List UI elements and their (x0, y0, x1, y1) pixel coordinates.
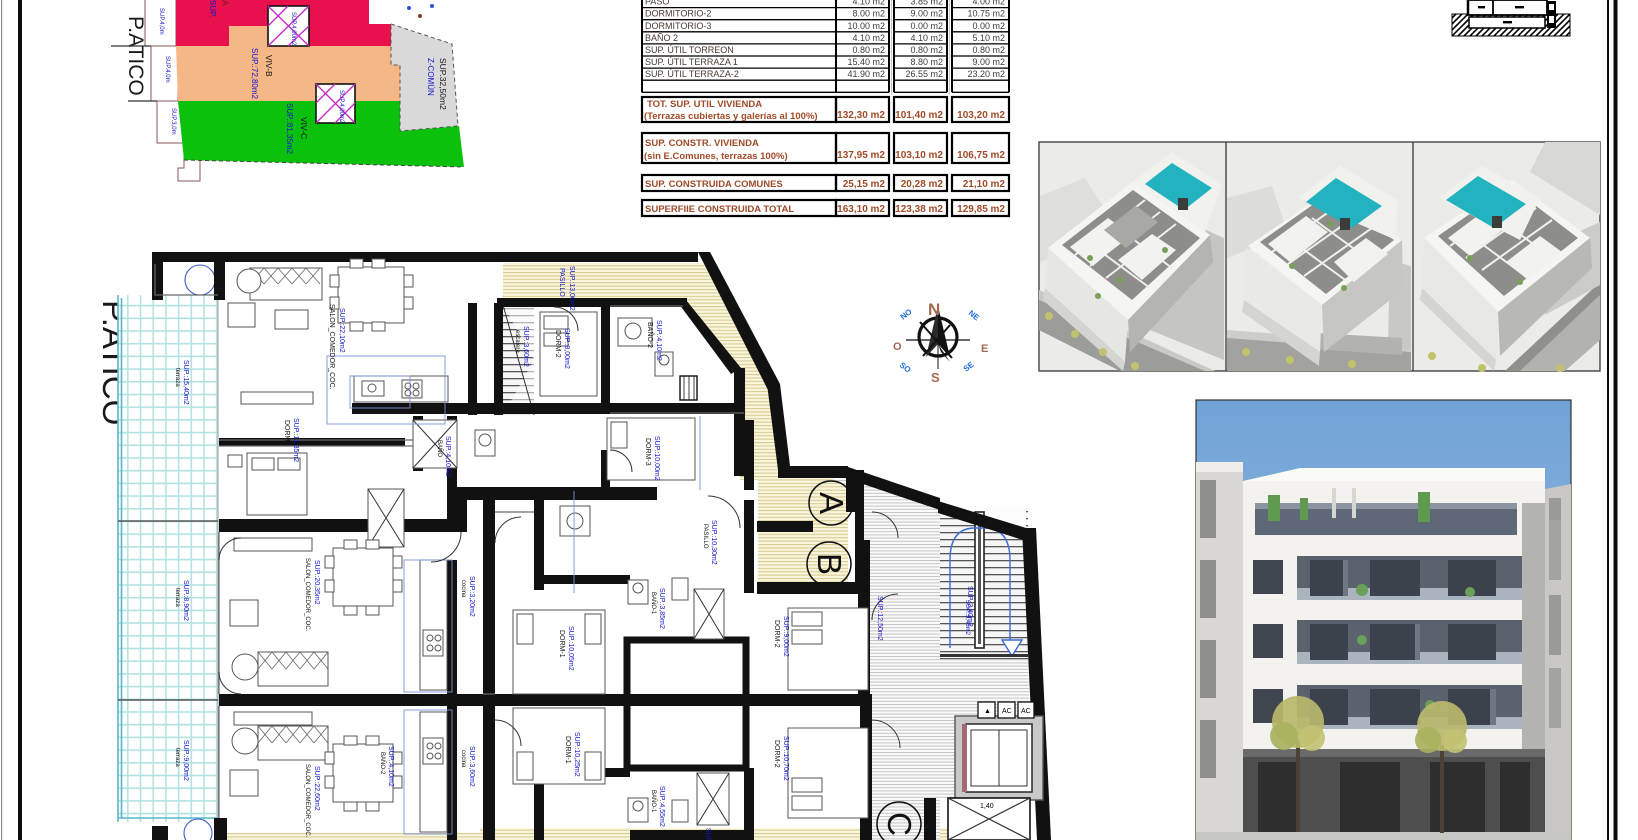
svg-text:SUP.:3,60m2: SUP.:3,60m2 (468, 746, 475, 787)
svg-text:DORM-1: DORM-1 (558, 630, 565, 658)
svg-text:DORM-2: DORM-2 (554, 330, 561, 358)
svg-text:cocina: cocina (460, 580, 466, 598)
svg-text:terraza: terraza (174, 748, 180, 767)
svg-text:cocina: cocina (460, 750, 466, 768)
svg-text:SUP.:10,05m2: SUP.:10,05m2 (567, 626, 574, 671)
svg-text:SUP.:13,00m2: SUP.:13,00m2 (568, 266, 575, 311)
svg-text:SUP.:9,00m2: SUP.:9,00m2 (782, 616, 789, 657)
svg-text:BAÑO: BAÑO (436, 440, 443, 457)
svg-text:BAÑO-1: BAÑO-1 (650, 790, 657, 813)
svg-text:SUP.:5,40m2: SUP.:5,40m2 (964, 600, 970, 636)
svg-text:SUP.: SUP. (704, 828, 711, 840)
svg-text:PASILLO: PASILLO (702, 524, 708, 549)
svg-text:SUP.:3,85m2: SUP.:3,85m2 (658, 588, 665, 629)
svg-text:SUP.:3,60m2: SUP.:3,60m2 (522, 326, 529, 367)
svg-text:SUP.:12,50m2: SUP.:12,50m2 (876, 596, 883, 641)
svg-text:SUP.:22,60m2: SUP.:22,60m2 (313, 766, 320, 811)
svg-text:SUP.:22,10m2: SUP.:22,10m2 (338, 308, 345, 353)
svg-text:DORM-3: DORM-3 (644, 438, 651, 466)
svg-text:SUP.:10,00m2: SUP.:10,00m2 (653, 436, 660, 481)
svg-text:SALON_COMEDOR_COC.: SALON_COMEDOR_COC. (304, 764, 310, 838)
svg-text:SUP.:4,10m2: SUP.:4,10m2 (444, 436, 451, 477)
svg-text:BAÑO-1: BAÑO-1 (650, 592, 657, 615)
svg-text:BAÑO-2: BAÑO-2 (646, 322, 655, 348)
svg-text:BAÑO-2: BAÑO-2 (379, 752, 386, 775)
svg-text:SUP.:8,90m2: SUP.:8,90m2 (182, 580, 189, 621)
svg-text:SUP.:4,10m2: SUP.:4,10m2 (387, 746, 394, 787)
svg-text:SUP.:11,35m2: SUP.:11,35m2 (292, 418, 299, 462)
svg-text:DORM-2: DORM-2 (773, 740, 780, 768)
svg-text:DORM-2: DORM-2 (773, 620, 780, 648)
svg-text:SUP.:8,00m2: SUP.:8,00m2 (563, 328, 570, 369)
svg-text:SALON_COMEDOR_COC.: SALON_COMEDOR_COC. (328, 304, 335, 390)
svg-text:SUP.:10,30m2: SUP.:10,30m2 (710, 520, 717, 565)
svg-text:DORM.: DORM. (283, 420, 290, 443)
svg-text:SUP.:4,10m2: SUP.:4,10m2 (655, 320, 662, 361)
svg-text:PASILLO: PASILLO (558, 268, 565, 297)
svg-text:DORM-1: DORM-1 (564, 736, 571, 764)
svg-text:terraza: terraza (174, 588, 180, 607)
svg-text:SUP.:3,20m2: SUP.:3,20m2 (468, 576, 475, 617)
svg-text:terraza: terraza (174, 368, 180, 387)
svg-text:SUP.:10,70m2: SUP.:10,70m2 (782, 736, 789, 781)
svg-text:SUP.:10,25m2: SUP.:10,25m2 (573, 732, 580, 777)
svg-text:SUP.:9,00m2: SUP.:9,00m2 (182, 740, 189, 781)
svg-text:SALON_COMEDOR_COC.: SALON_COMEDOR_COC. (304, 558, 310, 632)
svg-text:SUP.:15,40m2: SUP.:15,40m2 (182, 360, 189, 405)
svg-text:SUP.:20,35m2: SUP.:20,35m2 (313, 560, 320, 605)
svg-text:escalera: escalera (514, 330, 520, 353)
svg-text:SUP.:4,55m2: SUP.:4,55m2 (658, 786, 665, 827)
